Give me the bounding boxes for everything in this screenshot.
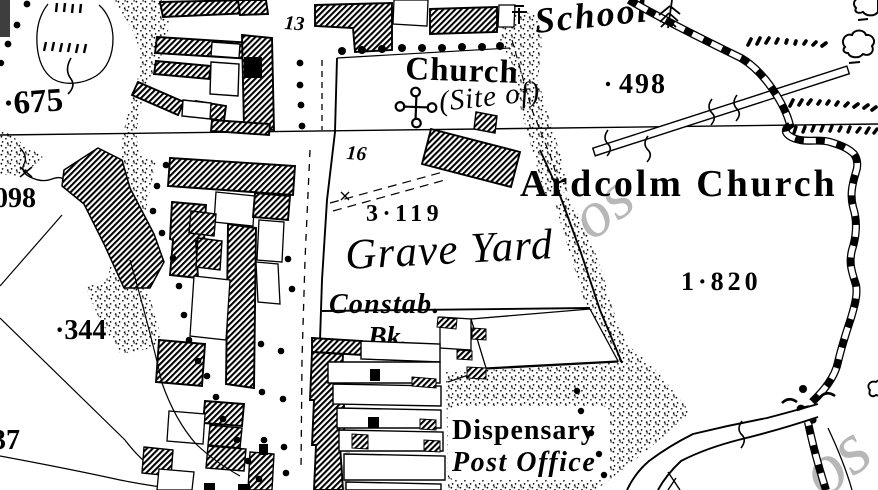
svg-text:Post Office: Post Office bbox=[451, 447, 596, 478]
svg-text:675: 675 bbox=[12, 82, 64, 121]
svg-text:098: 098 bbox=[0, 183, 36, 214]
svg-text:Ardcolm Church: Ardcolm Church bbox=[520, 163, 838, 205]
svg-text:13: 13 bbox=[284, 12, 305, 35]
svg-text:498: 498 bbox=[619, 69, 667, 100]
svg-text:1·820: 1·820 bbox=[681, 267, 762, 296]
svg-text:3·119: 3·119 bbox=[366, 201, 443, 227]
svg-text:·344: ·344 bbox=[55, 315, 106, 346]
svg-text:37: 37 bbox=[0, 425, 20, 456]
svg-text:16: 16 bbox=[346, 142, 367, 165]
svg-text:Dispensary: Dispensary bbox=[452, 415, 596, 446]
svg-text:Constab.: Constab. bbox=[329, 289, 441, 320]
